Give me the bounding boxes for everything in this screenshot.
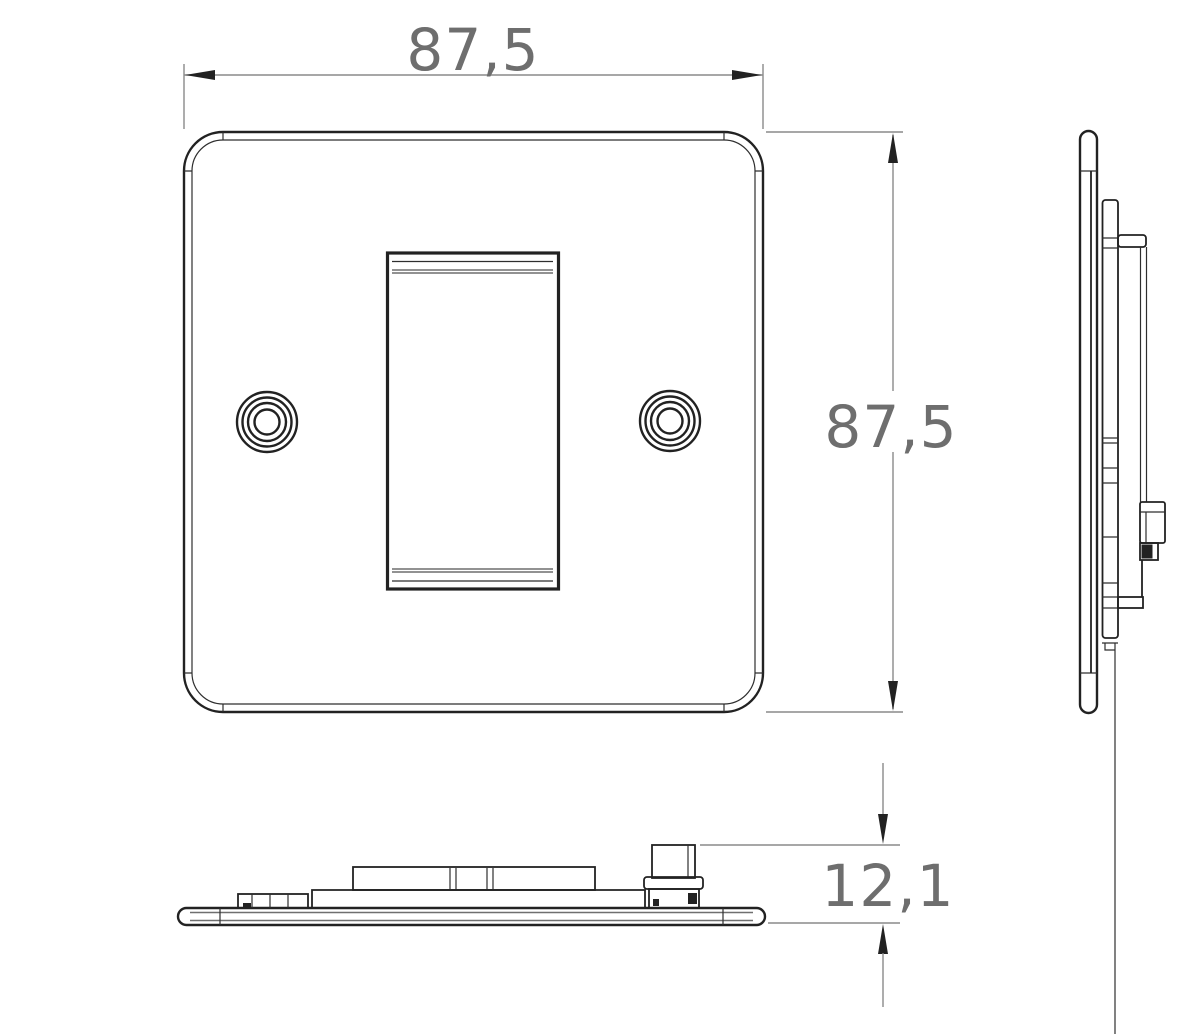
side-lower-tab (1118, 597, 1143, 608)
screw-right-ring-2 (646, 397, 695, 446)
bottom-plate-tangent-ticks (220, 908, 723, 925)
bottom-plate-inner-lines (190, 913, 753, 921)
front-plate-outline (184, 132, 763, 712)
bottom-housing-dividers (450, 868, 493, 889)
screw-right-ring-4 (658, 409, 683, 434)
depth-dimension-label: 12,1 (821, 852, 954, 920)
bottom-plate-profile (178, 908, 765, 925)
side-terminal-block (1140, 502, 1165, 543)
height-arrow-top (888, 133, 898, 163)
technical-drawing-page: 87,5 87,5 12,1 (0, 0, 1200, 1034)
bottom-central-housing (353, 867, 595, 890)
side-plate-tangent-ticks (1080, 171, 1097, 673)
rocker-top-double-line (392, 270, 553, 273)
dimension-height: 87,5 (766, 132, 958, 712)
side-plate-profile (1080, 131, 1097, 713)
bottom-left-boss-foot (243, 903, 251, 908)
screw-right (640, 391, 700, 451)
height-arrow-bottom (888, 681, 898, 711)
side-upper-tab (1118, 235, 1146, 247)
depth-arrow-up (878, 924, 888, 954)
bottom-mechanism-base (312, 890, 645, 908)
rocker-switch-outline (388, 253, 559, 589)
depth-arrow-down (878, 814, 888, 844)
corner-tangent-ticks (184, 132, 763, 712)
side-view (1080, 131, 1165, 1034)
width-arrow-right (732, 70, 762, 80)
side-module-bottom-stub (1102, 643, 1118, 1034)
dimension-width: 87,5 (184, 16, 763, 129)
screw-left-ring-1 (237, 392, 297, 452)
front-view (184, 132, 763, 712)
bottom-view (178, 845, 765, 925)
dimension-depth: 12,1 (700, 763, 955, 1007)
side-module-body (1103, 200, 1119, 638)
front-plate-inner-edge (192, 140, 755, 704)
width-arrow-left (185, 70, 215, 80)
bottom-terminal-screw-fill (653, 899, 659, 906)
screw-left-ring-2 (243, 398, 292, 447)
side-terminal-detail (1140, 512, 1165, 543)
screw-left (237, 392, 297, 452)
rocker-bottom-double-line (392, 569, 553, 572)
screw-right-ring-1 (640, 391, 700, 451)
bottom-terminal-clamp-fill (688, 893, 697, 904)
height-dimension-label: 87,5 (824, 393, 957, 461)
width-dimension-label: 87,5 (406, 16, 539, 84)
side-module-detail-lines (1102, 238, 1118, 608)
side-back-bar (1141, 247, 1147, 502)
screw-left-ring-4 (255, 410, 280, 435)
switch-plate-drawing: 87,5 87,5 12,1 (0, 0, 1200, 1034)
bottom-left-boss-details (252, 894, 288, 908)
side-terminal-step-fill (1142, 545, 1153, 559)
